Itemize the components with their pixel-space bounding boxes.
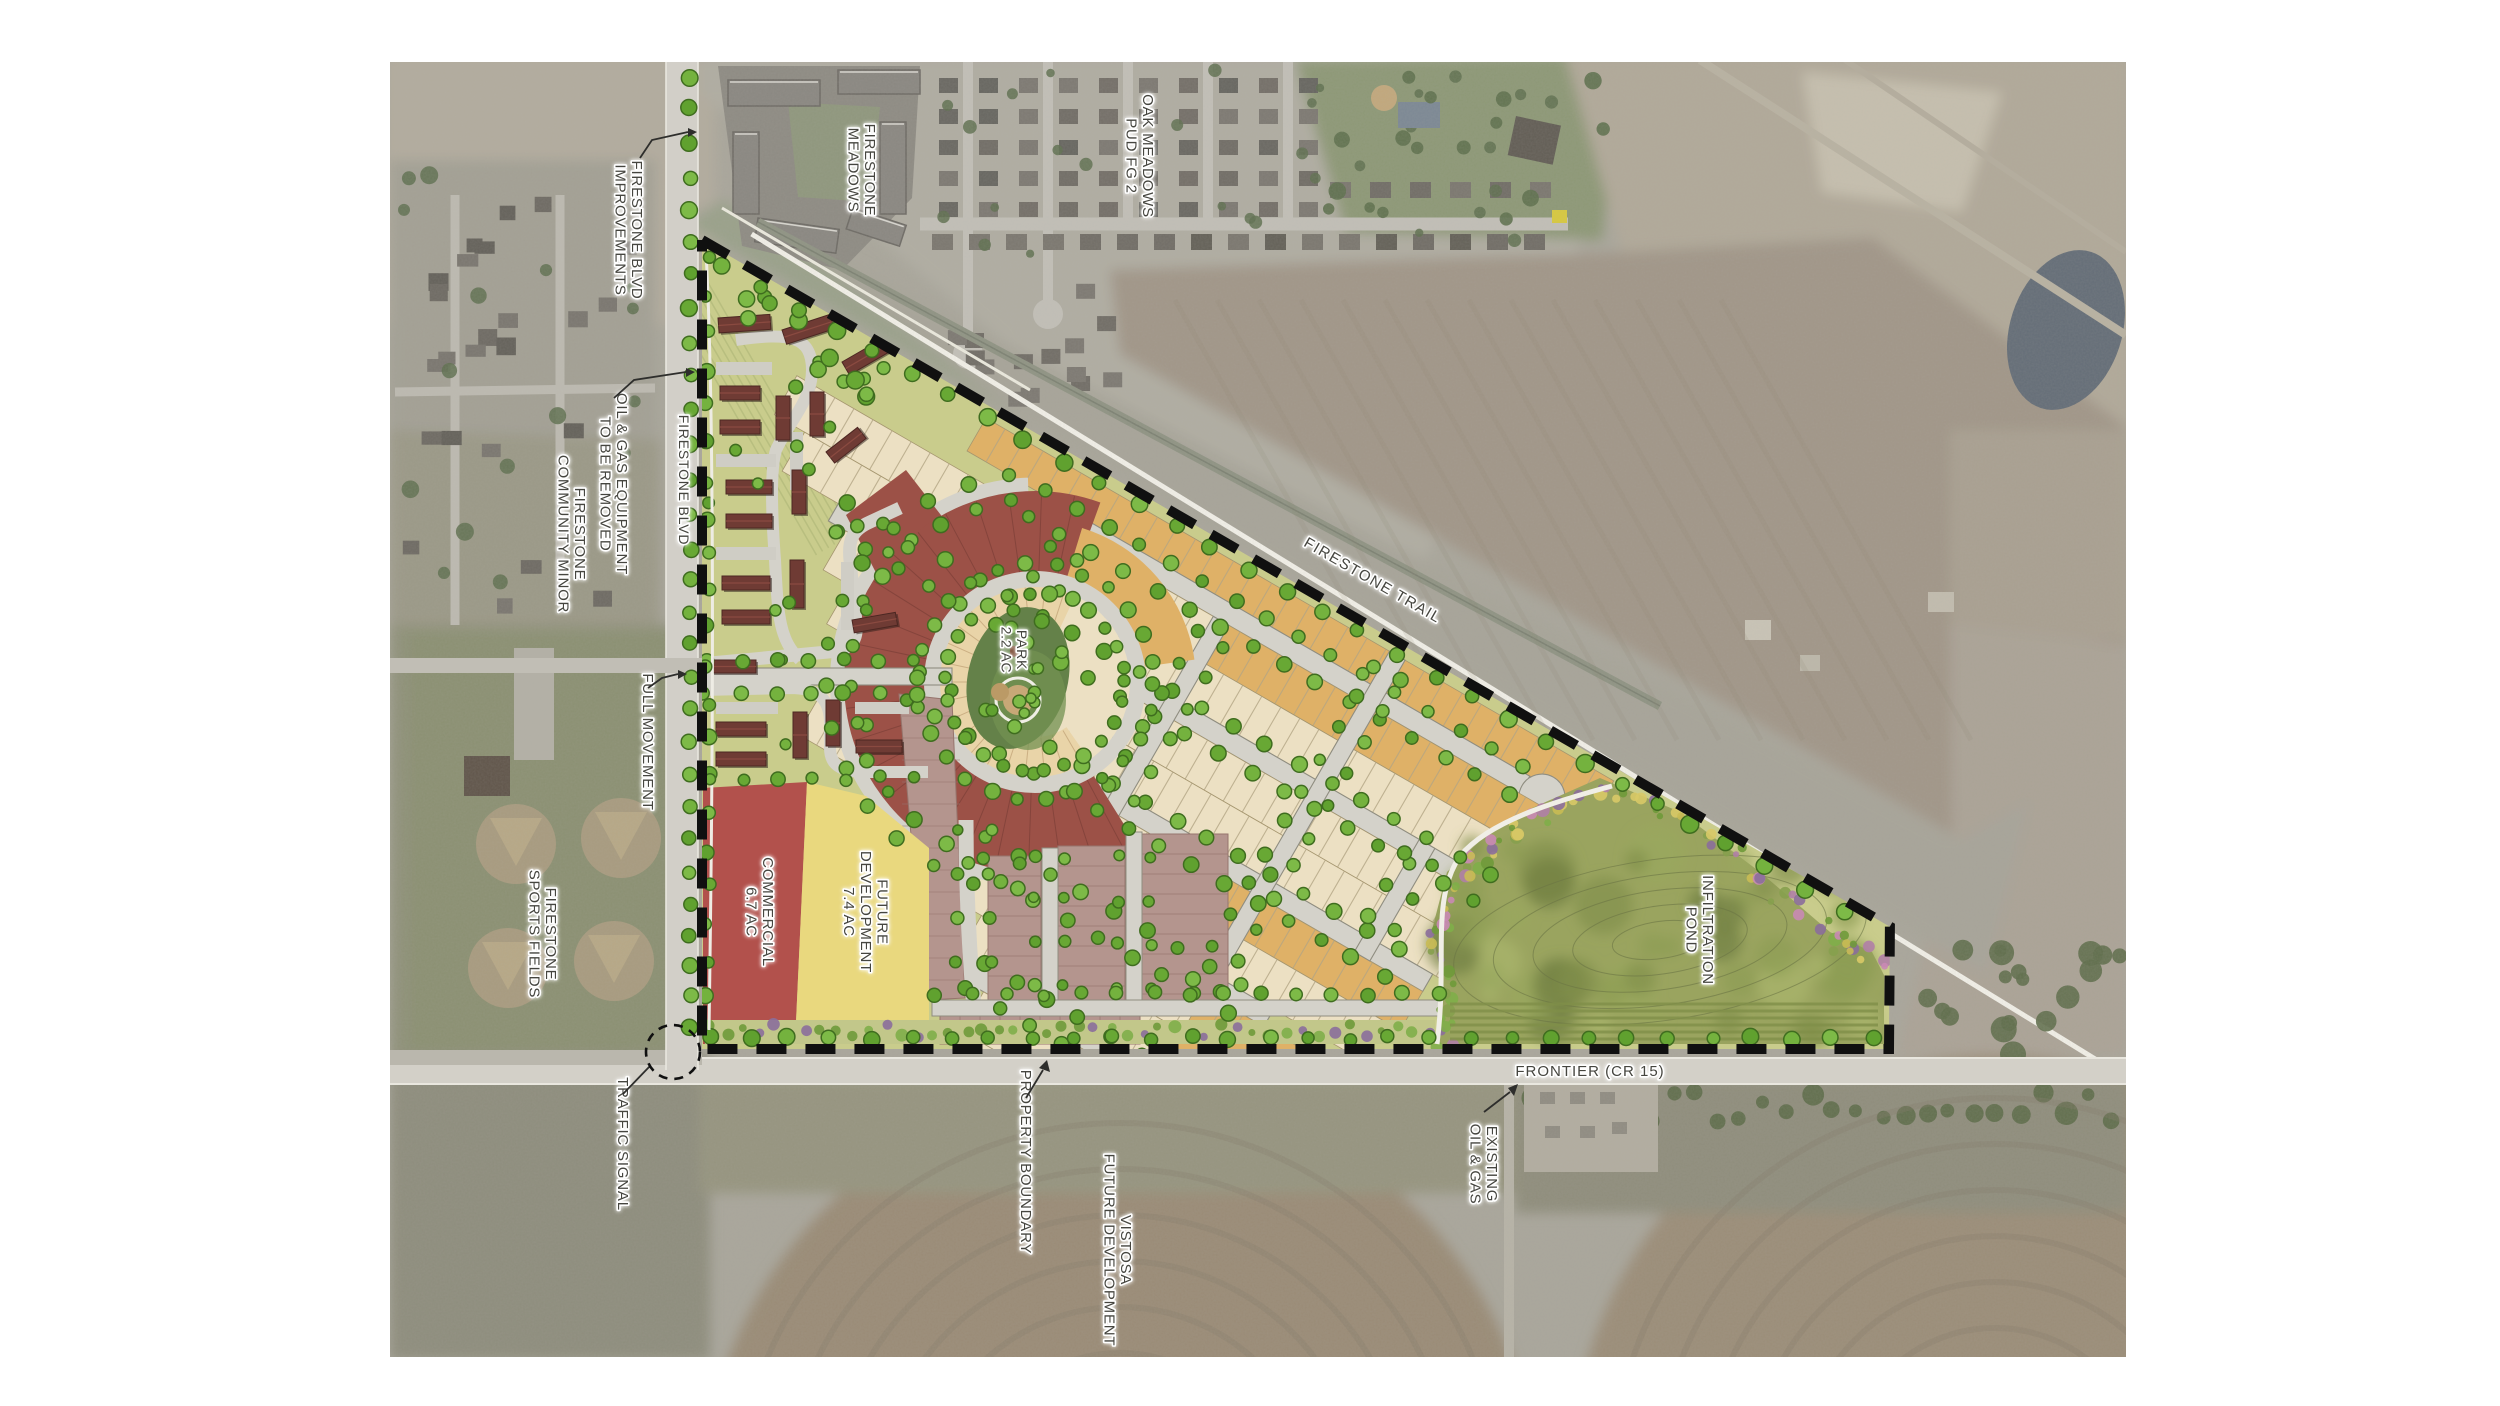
svg-text:SPORTS FIELDS: SPORTS FIELDS [525,870,542,999]
svg-text:EXISTING: EXISTING [1483,1126,1500,1202]
svg-text:FUTURE DEVELOPMENT: FUTURE DEVELOPMENT [1100,1154,1117,1347]
svg-text:FIRESTONE: FIRESTONE [861,124,878,217]
svg-text:7.4 AC: 7.4 AC [840,887,857,937]
svg-text:VISTOSA: VISTOSA [1117,1215,1134,1285]
svg-text:2.2 AC: 2.2 AC [998,627,1014,674]
svg-text:6.7 AC: 6.7 AC [742,887,759,937]
svg-text:POND: POND [1682,907,1699,954]
svg-text:COMMERCIAL: COMMERCIAL [759,857,776,967]
svg-text:COMMUNITY MINOR: COMMUNITY MINOR [554,455,571,613]
svg-text:OIL & GAS: OIL & GAS [1466,1124,1483,1205]
svg-text:OAK MEADOWS: OAK MEADOWS [1139,94,1156,218]
svg-text:FIRESTONE BLVD: FIRESTONE BLVD [628,160,645,299]
svg-text:FIRESTONE: FIRESTONE [571,488,588,581]
svg-text:MEADOWS: MEADOWS [844,128,861,213]
svg-text:IMPROVEMENTS: IMPROVEMENTS [611,164,628,295]
svg-text:FUTURE: FUTURE [874,879,891,945]
svg-text:PUD FG 2: PUD FG 2 [1122,118,1139,194]
svg-text:INFILTRATION: INFILTRATION [1699,875,1716,985]
svg-text:PARK: PARK [1014,630,1030,670]
svg-text:TO BE REMOVED: TO BE REMOVED [596,416,613,551]
svg-text:FRONTIER (CR 15): FRONTIER (CR 15) [1515,1063,1664,1080]
svg-text:OIL & GAS EQUIPMENT: OIL & GAS EQUIPMENT [613,393,630,575]
svg-text:TRAFFIC SIGNAL: TRAFFIC SIGNAL [614,1077,631,1211]
svg-text:FIRESTONE: FIRESTONE [542,888,559,981]
svg-text:FULL MOVEMENT: FULL MOVEMENT [639,673,656,810]
svg-text:FIRESTONE BLVD: FIRESTONE BLVD [676,415,692,546]
svg-text:DEVELOPMENT: DEVELOPMENT [857,851,874,973]
